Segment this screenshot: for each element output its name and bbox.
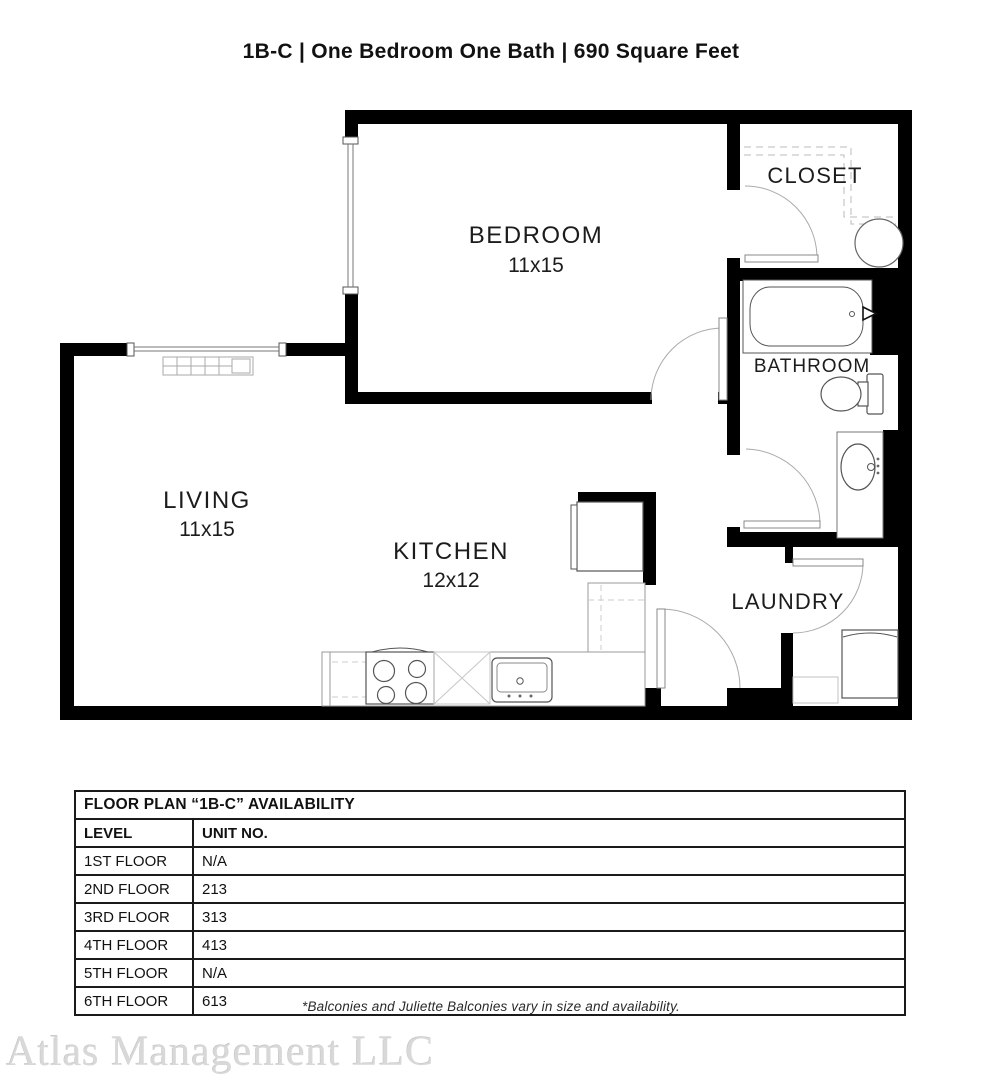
table-row: 2ND FLOOR 213 [75,875,905,903]
bedroom-dims: 11x15 [508,254,564,277]
table-row: 5TH FLOOR N/A [75,959,905,987]
column-header-unit: UNIT NO. [193,819,905,847]
table-title: FLOOR PLAN “1B-C” AVAILABILITY [75,791,905,819]
heater-unit [163,357,253,375]
floor-plan-page: { "title": "1B-C | One Bedroom One Bath … [0,0,982,1080]
level-cell: 1ST FLOOR [75,847,193,875]
table-row: 1ST FLOOR N/A [75,847,905,875]
unit-cell: 213 [193,875,905,903]
kitchen-dims: 12x12 [422,569,479,592]
closet-door [745,186,818,262]
unit-cell: 313 [193,903,905,931]
column-header-level: LEVEL [75,819,193,847]
table-title-row: FLOOR PLAN “1B-C” AVAILABILITY [75,791,905,819]
table-row: 3RD FLOOR 313 [75,903,905,931]
kitchen-sink [492,658,552,702]
level-cell: 2ND FLOOR [75,875,193,903]
unit-cell: 413 [193,931,905,959]
washer-dryer [793,630,898,703]
living-label: LIVING [163,487,251,514]
living-window [127,343,286,356]
bedroom-label: BEDROOM [469,222,604,249]
kitchen-laundry-door [657,609,740,688]
bedroom-door [651,318,727,400]
kitchen-label: KITCHEN [393,538,509,565]
bedroom-window [343,137,358,294]
living-dims: 11x15 [179,518,235,541]
level-cell: 4TH FLOOR [75,931,193,959]
level-cell: 3RD FLOOR [75,903,193,931]
refrigerator [571,502,643,571]
water-heater [855,219,903,267]
balcony-footnote: *Balconies and Juliette Balconies vary i… [0,999,982,1014]
closet-label: CLOSET [767,163,862,188]
bathtub [743,280,876,353]
table-row: 4TH FLOOR 413 [75,931,905,959]
toilet [821,374,883,414]
floor-plan-drawing: BEDROOM 11x15 LIVING 11x15 KITCHEN 12x12… [0,0,982,770]
bathroom-door [744,449,820,528]
sink-vanity [837,432,883,538]
unit-cell: N/A [193,959,905,987]
level-cell: 5TH FLOOR [75,959,193,987]
bathroom-label: BATHROOM [754,356,870,377]
unit-cell: N/A [193,847,905,875]
availability-table: FLOOR PLAN “1B-C” AVAILABILITY LEVEL UNI… [74,790,906,1016]
stove [366,648,434,704]
walls [60,110,912,720]
watermark: Atlas Management LLC [6,1028,434,1076]
laundry-label: LAUNDRY [731,589,844,614]
table-header-row: LEVEL UNIT NO. [75,819,905,847]
